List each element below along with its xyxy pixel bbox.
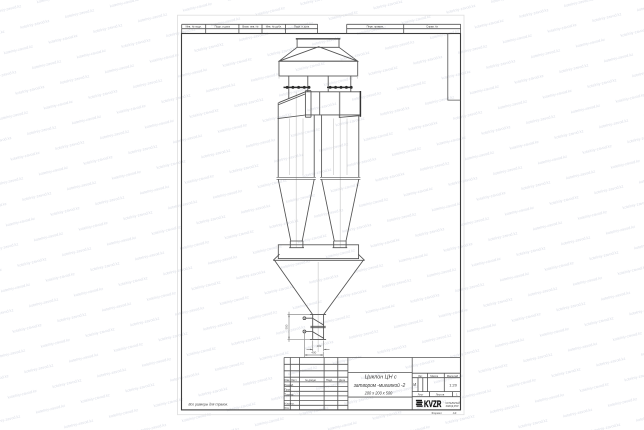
svg-text:Инв. № подл.: Инв. № подл. (186, 25, 202, 29)
svg-text:затвором -мигалкой -2: затвором -мигалкой -2 (353, 382, 405, 389)
svg-text:Изм.: Изм. (285, 378, 291, 382)
svg-text:Пров.: Пров. (285, 388, 292, 392)
svg-text:Масса: Масса (430, 374, 438, 378)
svg-text:102: 102 (317, 344, 322, 348)
svg-text:200 х 200 х 500: 200 х 200 х 500 (364, 390, 393, 396)
svg-text:1:20: 1:20 (449, 383, 457, 388)
svg-text:Утв.: Утв. (285, 406, 290, 410)
svg-text:ЗАВОД РОР: ЗАВОД РОР (446, 405, 460, 408)
svg-text:500: 500 (284, 324, 288, 329)
svg-text:Инв. № дубл.: Инв. № дубл. (266, 25, 282, 29)
svg-text:№ докум.: № докум. (305, 379, 317, 382)
svg-text:А3: А3 (453, 411, 457, 415)
svg-text:400: 400 (311, 351, 316, 355)
svg-text:Дата: Дата (339, 378, 345, 382)
svg-text:Н.контр.: Н.контр. (285, 402, 295, 406)
svg-text:Взам. инв. №: Взам. инв. № (242, 25, 258, 29)
svg-text:Масштаб: Масштаб (447, 374, 459, 378)
svg-text:Лист: Лист (418, 392, 424, 396)
svg-text:Циклон ЦН с: Циклон ЦН с (365, 375, 397, 381)
svg-text:Подп. и дата: Подп. и дата (294, 25, 310, 29)
svg-text:Подп.: Подп. (326, 378, 333, 382)
svg-text:Листов: Листов (436, 392, 445, 396)
svg-text:KVZR: KVZR (424, 398, 442, 409)
svg-text:Справ. №: Справ. № (426, 25, 438, 29)
svg-text:Лист: Лист (291, 378, 297, 382)
svg-text:И: И (413, 382, 416, 387)
svg-text:Лит.: Лит. (418, 374, 423, 378)
svg-text:Т.контр.: Т.контр. (285, 392, 295, 396)
svg-text:Перв. примен.: Перв. примен. (367, 25, 385, 29)
svg-text:Все размеры для справок.: Все размеры для справок. (189, 402, 229, 406)
svg-text:Разраб.: Разраб. (285, 383, 295, 387)
svg-text:Формат: Формат (432, 411, 443, 415)
svg-text:КОТЕЛЬНЫЙ: КОТЕЛЬНЫЙ (446, 402, 461, 405)
svg-text:Подп. и дата: Подп. и дата (215, 25, 231, 29)
